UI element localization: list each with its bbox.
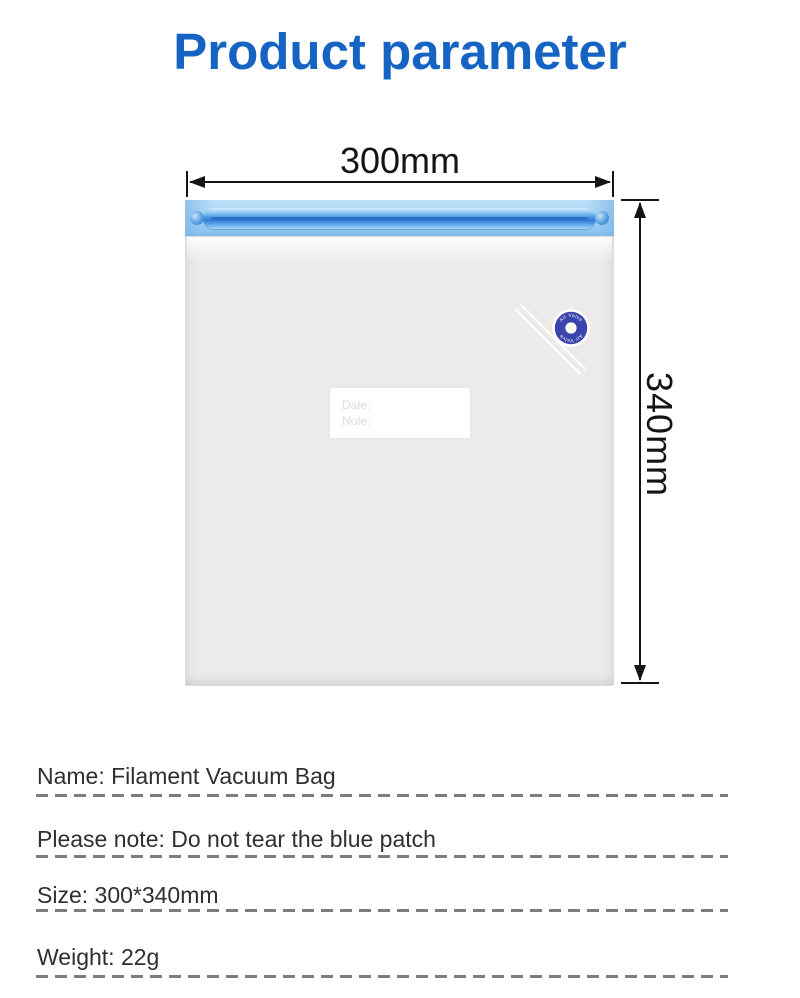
spec-weight: Weight: 22g <box>37 943 159 971</box>
divider-dashed-4 <box>36 975 728 978</box>
width-dimension-label: 300mm <box>300 140 500 182</box>
spec-name: Name: Filament Vacuum Bag <box>37 762 336 790</box>
bag-top-sheen <box>187 237 612 263</box>
height-dim-tick-bottom <box>621 682 659 684</box>
height-dim-arrow-up-icon <box>634 202 646 218</box>
zipper-knob-left <box>190 211 204 225</box>
height-dim-line <box>639 203 641 680</box>
zipper-groove <box>211 217 588 220</box>
width-dim-arrow-right-icon <box>595 176 611 188</box>
bag-body: Air Valve Air Valve Date: Note: <box>185 236 614 686</box>
width-dim-line <box>190 181 610 183</box>
write-on-tag: Date: Note: <box>330 388 470 438</box>
spec-size: Size: 300*340mm <box>37 881 219 909</box>
tag-date-line: Date: <box>342 397 470 413</box>
zipper-band <box>185 200 614 236</box>
width-dim-tick-right <box>612 171 614 197</box>
air-valve-icon: Air Valve Air Valve <box>551 308 591 348</box>
width-dim-tick-left <box>186 171 188 197</box>
height-dimension-label: 340mm <box>638 372 680 497</box>
tag-note-line: Note: <box>342 413 470 429</box>
width-dim-arrow-left-icon <box>189 176 205 188</box>
height-dim-arrow-down-icon <box>634 665 646 681</box>
zipper-knob-right <box>595 211 609 225</box>
height-dim-tick-top <box>621 199 659 201</box>
spec-note: Please note: Do not tear the blue patch <box>37 825 436 853</box>
divider-dashed-3 <box>36 909 728 912</box>
page-title: Product parameter <box>0 22 800 81</box>
air-valve: Air Valve Air Valve <box>551 308 591 348</box>
vacuum-bag-illustration: Air Valve Air Valve Date: Note: <box>185 200 614 686</box>
page: Product parameter 300mm 340mm <box>0 0 800 998</box>
divider-dashed-1 <box>36 794 728 797</box>
divider-dashed-2 <box>36 855 728 858</box>
